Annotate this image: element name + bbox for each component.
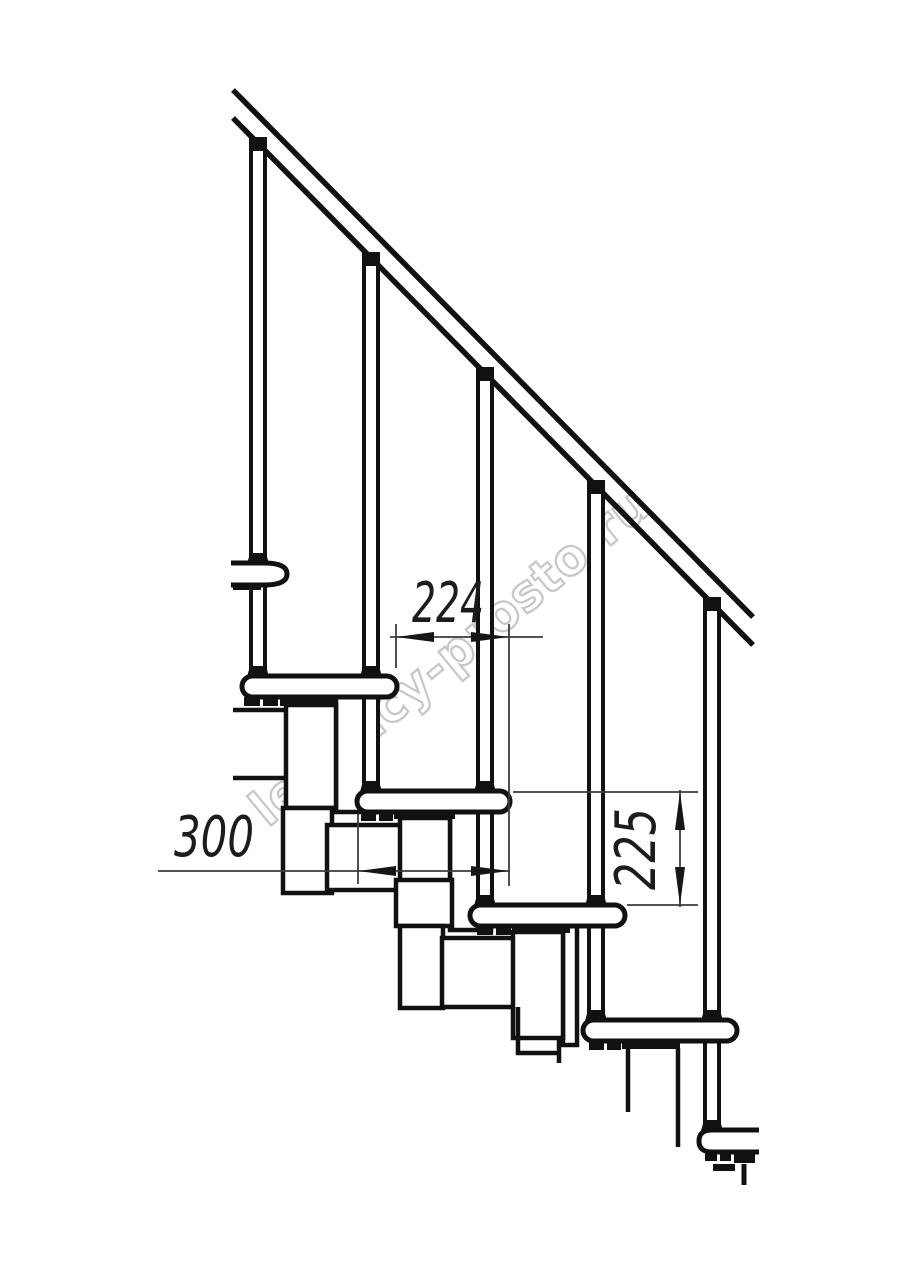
collar-b5-tread4 — [701, 1010, 723, 1021]
module-1a — [286, 705, 336, 808]
baluster-4 — [589, 492, 603, 1021]
collar-b1-bracket — [247, 553, 269, 564]
collar-b2-tread2 — [360, 781, 382, 792]
module-2a — [400, 818, 450, 888]
collar-b3-tread2 — [474, 781, 496, 792]
tread-4 — [583, 1020, 737, 1041]
collar-b4-tread3 — [585, 895, 607, 906]
module-2d — [400, 926, 443, 1008]
tread-1-plate — [280, 697, 336, 706]
tread-2-foot-b — [379, 812, 393, 821]
staircase-drawing-page: lestnicy-prosto.ru — [0, 0, 914, 1280]
dim-300-label: 300 — [174, 805, 254, 870]
collar-b1-tread1 — [247, 666, 269, 677]
bracket-top-pad — [233, 583, 261, 590]
dim-225-arrow-up — [675, 792, 685, 830]
collar-b3-tread3 — [474, 895, 496, 906]
bracket-bottom-plate — [734, 1153, 755, 1163]
tread-2-foot-a — [361, 812, 376, 821]
dim-225-arrow-down — [675, 867, 685, 905]
baluster-1 — [251, 149, 265, 677]
bracket-bottom-foot-b — [720, 1153, 731, 1161]
tread-3-plate — [512, 924, 570, 933]
tread-2 — [357, 791, 510, 812]
bracket-bottom-pad — [713, 1164, 735, 1171]
wall-bracket-top — [231, 563, 287, 585]
tread-3 — [470, 905, 625, 926]
baluster-3 — [478, 379, 492, 906]
tread-3-foot-a — [477, 926, 493, 935]
module-2e — [442, 938, 518, 1007]
dimension-225: 225 — [513, 790, 698, 907]
wall-bracket-bottom — [699, 1130, 759, 1152]
tread-2-plate — [394, 810, 455, 819]
collar-b5-bracket — [701, 1120, 723, 1131]
tread-1 — [242, 676, 397, 697]
bracket-bottom-foot-a — [705, 1153, 717, 1161]
dim-224-label: 224 — [412, 571, 484, 636]
tread-3-foot-b — [496, 926, 511, 935]
module-3a — [513, 932, 563, 1038]
tread-4-foot-b — [607, 1041, 621, 1050]
collar-b4-tread4 — [585, 1010, 607, 1021]
dim-225-label: 225 — [604, 808, 669, 890]
baluster-2 — [364, 264, 378, 792]
module-1c — [283, 808, 332, 893]
staircase-technical-drawing: lestnicy-prosto.ru — [0, 0, 914, 1280]
tread-4-plate — [622, 1040, 680, 1049]
module-2c — [396, 880, 452, 926]
baluster-5 — [705, 609, 719, 1131]
tread-1-foot-a — [244, 697, 260, 706]
tread-4-foot-a — [589, 1041, 604, 1050]
tread-1-foot-b — [263, 697, 278, 706]
collar-b2-tread1 — [360, 666, 382, 677]
